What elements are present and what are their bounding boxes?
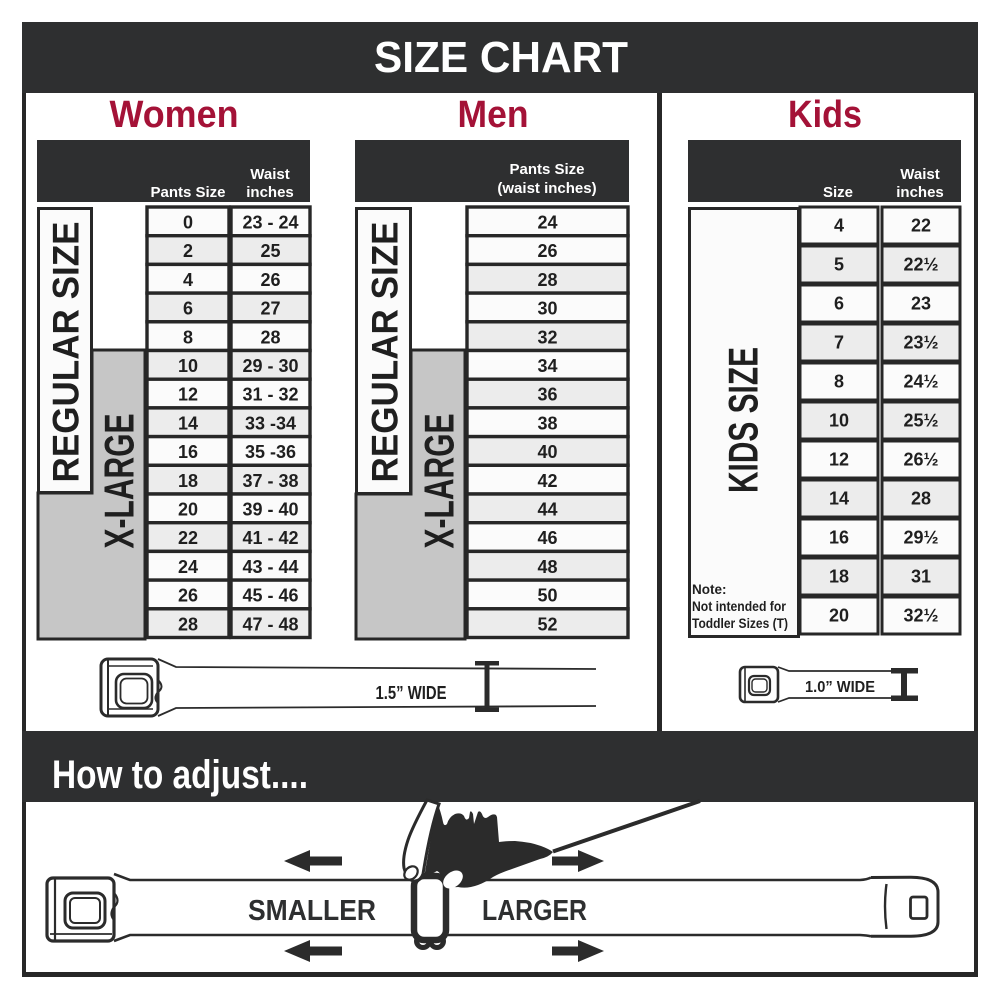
svg-text:LARGER: LARGER	[482, 895, 587, 927]
svg-text:Men: Men	[458, 94, 529, 136]
svg-text:8: 8	[183, 327, 193, 347]
svg-text:Not intended for: Not intended for	[692, 599, 787, 614]
svg-text:32½: 32½	[903, 606, 938, 626]
svg-text:Pants Size: Pants Size	[150, 184, 225, 201]
svg-text:38: 38	[537, 413, 557, 433]
svg-text:41 - 42: 41 - 42	[242, 528, 298, 548]
svg-text:14: 14	[178, 413, 198, 433]
svg-text:22½: 22½	[903, 255, 938, 275]
svg-text:Women: Women	[110, 94, 239, 136]
svg-text:27: 27	[260, 299, 280, 319]
svg-text:4: 4	[834, 216, 844, 236]
svg-text:REGULAR SIZE: REGULAR SIZE	[365, 222, 406, 483]
svg-text:X-LARGE: X-LARGE	[96, 414, 143, 549]
svg-text:34: 34	[537, 356, 557, 376]
svg-text:30: 30	[537, 299, 557, 319]
svg-text:6: 6	[183, 299, 193, 319]
svg-text:16: 16	[829, 528, 849, 548]
svg-text:22: 22	[911, 216, 931, 236]
svg-text:25½: 25½	[903, 411, 938, 431]
svg-text:40: 40	[537, 442, 557, 462]
svg-text:29½: 29½	[903, 528, 938, 548]
svg-text:8: 8	[834, 372, 844, 392]
svg-text:26: 26	[537, 241, 557, 261]
svg-text:33 -34: 33 -34	[245, 413, 296, 433]
svg-text:22: 22	[178, 528, 198, 548]
svg-text:26: 26	[260, 270, 280, 290]
svg-text:X-LARGE: X-LARGE	[416, 414, 463, 549]
svg-text:28: 28	[260, 327, 280, 347]
svg-text:6: 6	[834, 294, 844, 314]
svg-text:31: 31	[911, 567, 931, 587]
svg-text:SIZE CHART: SIZE CHART	[374, 33, 628, 82]
svg-text:10: 10	[829, 411, 849, 431]
svg-text:4: 4	[183, 270, 193, 290]
svg-text:28: 28	[911, 489, 931, 509]
svg-text:(waist inches): (waist inches)	[497, 180, 596, 197]
svg-text:KIDS SIZE: KIDS SIZE	[720, 347, 767, 493]
svg-text:12: 12	[178, 385, 198, 405]
svg-text:39 - 40: 39 - 40	[242, 500, 298, 520]
svg-text:Toddler Sizes (T): Toddler Sizes (T)	[692, 616, 788, 631]
svg-text:Size: Size	[823, 184, 853, 201]
svg-text:10: 10	[178, 356, 198, 376]
svg-text:Waist: Waist	[250, 166, 289, 183]
svg-text:12: 12	[829, 450, 849, 470]
svg-text:23½: 23½	[903, 333, 938, 353]
svg-text:1.0” WIDE: 1.0” WIDE	[805, 679, 875, 696]
svg-text:31 - 32: 31 - 32	[242, 385, 298, 405]
svg-text:42: 42	[537, 471, 557, 491]
svg-text:Pants Size: Pants Size	[509, 161, 584, 178]
svg-text:Note:: Note:	[692, 582, 727, 597]
svg-text:28: 28	[537, 270, 557, 290]
svg-text:0: 0	[183, 213, 193, 233]
svg-text:Waist: Waist	[900, 166, 939, 183]
svg-text:20: 20	[829, 606, 849, 626]
svg-text:SMALLER: SMALLER	[248, 895, 376, 927]
svg-text:32: 32	[537, 327, 557, 347]
svg-text:Kids: Kids	[788, 94, 862, 136]
svg-text:28: 28	[178, 614, 198, 634]
svg-text:7: 7	[834, 333, 844, 353]
svg-text:23 - 24: 23 - 24	[242, 213, 298, 233]
svg-text:18: 18	[829, 567, 849, 587]
svg-text:24: 24	[178, 557, 198, 577]
svg-text:36: 36	[537, 385, 557, 405]
svg-text:46: 46	[537, 528, 557, 548]
svg-text:inches: inches	[246, 184, 294, 201]
svg-text:26½: 26½	[903, 450, 938, 470]
svg-text:24: 24	[537, 213, 557, 233]
svg-text:25: 25	[260, 241, 280, 261]
svg-text:52: 52	[537, 614, 557, 634]
svg-text:44: 44	[537, 500, 557, 520]
svg-text:1.5” WIDE: 1.5” WIDE	[376, 683, 447, 703]
svg-text:23: 23	[911, 294, 931, 314]
svg-text:inches: inches	[896, 184, 944, 201]
svg-text:How to adjust....: How to adjust....	[52, 753, 308, 797]
svg-text:35 -36: 35 -36	[245, 442, 296, 462]
svg-text:26: 26	[178, 586, 198, 606]
svg-text:2: 2	[183, 241, 193, 261]
svg-text:14: 14	[829, 489, 849, 509]
svg-text:5: 5	[834, 255, 844, 275]
svg-text:47 - 48: 47 - 48	[242, 614, 298, 634]
svg-text:43 - 44: 43 - 44	[242, 557, 298, 577]
svg-text:24½: 24½	[903, 372, 938, 392]
svg-text:50: 50	[537, 586, 557, 606]
svg-text:18: 18	[178, 471, 198, 491]
svg-text:45 - 46: 45 - 46	[242, 586, 298, 606]
svg-text:48: 48	[537, 557, 557, 577]
svg-text:37 - 38: 37 - 38	[242, 471, 298, 491]
svg-text:20: 20	[178, 500, 198, 520]
svg-text:16: 16	[178, 442, 198, 462]
svg-text:29 - 30: 29 - 30	[242, 356, 298, 376]
svg-text:REGULAR SIZE: REGULAR SIZE	[46, 222, 87, 483]
